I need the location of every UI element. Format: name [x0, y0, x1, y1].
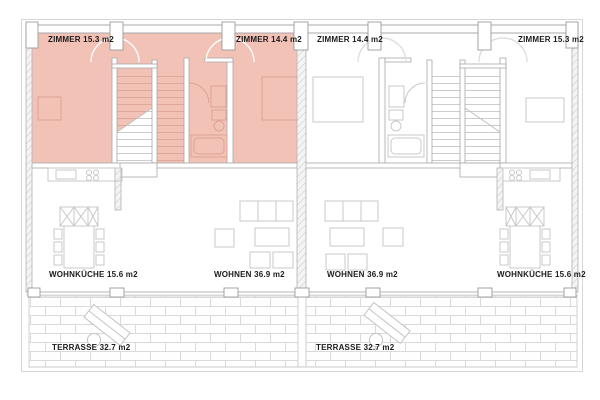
floor-plan: ZIMMER 15.3 m2 ZIMMER 14.4 m2 ZIMMER 14.… — [0, 0, 600, 400]
right-exterior-wall — [572, 25, 578, 292]
room-label-wohnen-right: WOHNEN 36.9 m2 — [327, 270, 398, 279]
dining-table-left — [64, 226, 94, 268]
side-table-left — [215, 229, 234, 247]
armchair-left-2 — [273, 252, 293, 268]
dining-table-right — [510, 226, 540, 268]
armchair-left-1 — [250, 252, 270, 268]
kitchen-island-right — [500, 207, 550, 268]
room-label-terrasse-right: TERRASSE 32.7 m2 — [316, 343, 394, 352]
floor-plan-drawing — [0, 0, 600, 400]
coffee-table-right — [330, 228, 364, 246]
kitchen-sink-left — [56, 170, 76, 179]
sink-right — [389, 86, 404, 107]
coffee-table-left — [255, 228, 289, 246]
room-label-zimmer-right-a: ZIMMER 14.4 m2 — [317, 35, 383, 44]
unit-right-upper — [313, 38, 564, 163]
room-label-zimmer-left-b: ZIMMER 14.4 m2 — [236, 35, 302, 44]
side-table-right — [383, 228, 403, 246]
stair-flight-a-right — [465, 70, 500, 163]
kitchen-wall-stubs — [115, 168, 503, 210]
sofa-group-right — [325, 201, 403, 270]
unit-left-living — [48, 168, 293, 268]
unit-right-living — [325, 168, 560, 270]
terraces — [29, 296, 577, 367]
bathroom-right — [388, 83, 425, 157]
toilet-bowl-right — [391, 121, 401, 131]
bathtub-inner-right — [391, 138, 421, 154]
terrace-left — [29, 296, 299, 367]
room-label-zimmer-left-a: ZIMMER 15.3 m2 — [48, 35, 114, 44]
armchair-right-1 — [326, 254, 345, 270]
stair-flight-b-right — [432, 70, 460, 163]
cooktop-left — [87, 170, 99, 181]
room-label-zimmer-right-b: ZIMMER 15.3 m2 — [518, 35, 584, 44]
terrace-divider-wall — [298, 296, 306, 367]
bed-zimmer-right-b — [526, 98, 564, 122]
sofa-left — [240, 201, 293, 221]
cooktop-right — [510, 170, 522, 181]
room-label-wohnkueche-right: WOHNKÜCHE 15.6 m2 — [497, 270, 586, 279]
party-wall — [297, 33, 306, 292]
bed-zimmer-right-a — [313, 77, 363, 122]
stair-flight-b-left — [157, 70, 184, 163]
sofa-group-left — [215, 201, 293, 268]
bath-door-arc-right — [405, 83, 425, 103]
sofa-right — [325, 201, 378, 221]
toilet-tank-right — [389, 110, 403, 120]
room-label-terrasse-left: TERRASSE 32.7 m2 — [52, 343, 130, 352]
room-label-wohnkueche-left: WOHNKÜCHE 15.6 m2 — [49, 270, 138, 279]
stair-flight-a-left — [117, 70, 152, 163]
kitchen-sink-right — [530, 170, 550, 179]
armchair-right-2 — [348, 254, 367, 270]
left-exterior-wall — [26, 25, 32, 292]
kitchen-island-left — [54, 207, 104, 268]
terrace-right — [305, 296, 577, 367]
room-label-wohnen-left: WOHNEN 36.9 m2 — [214, 270, 285, 279]
